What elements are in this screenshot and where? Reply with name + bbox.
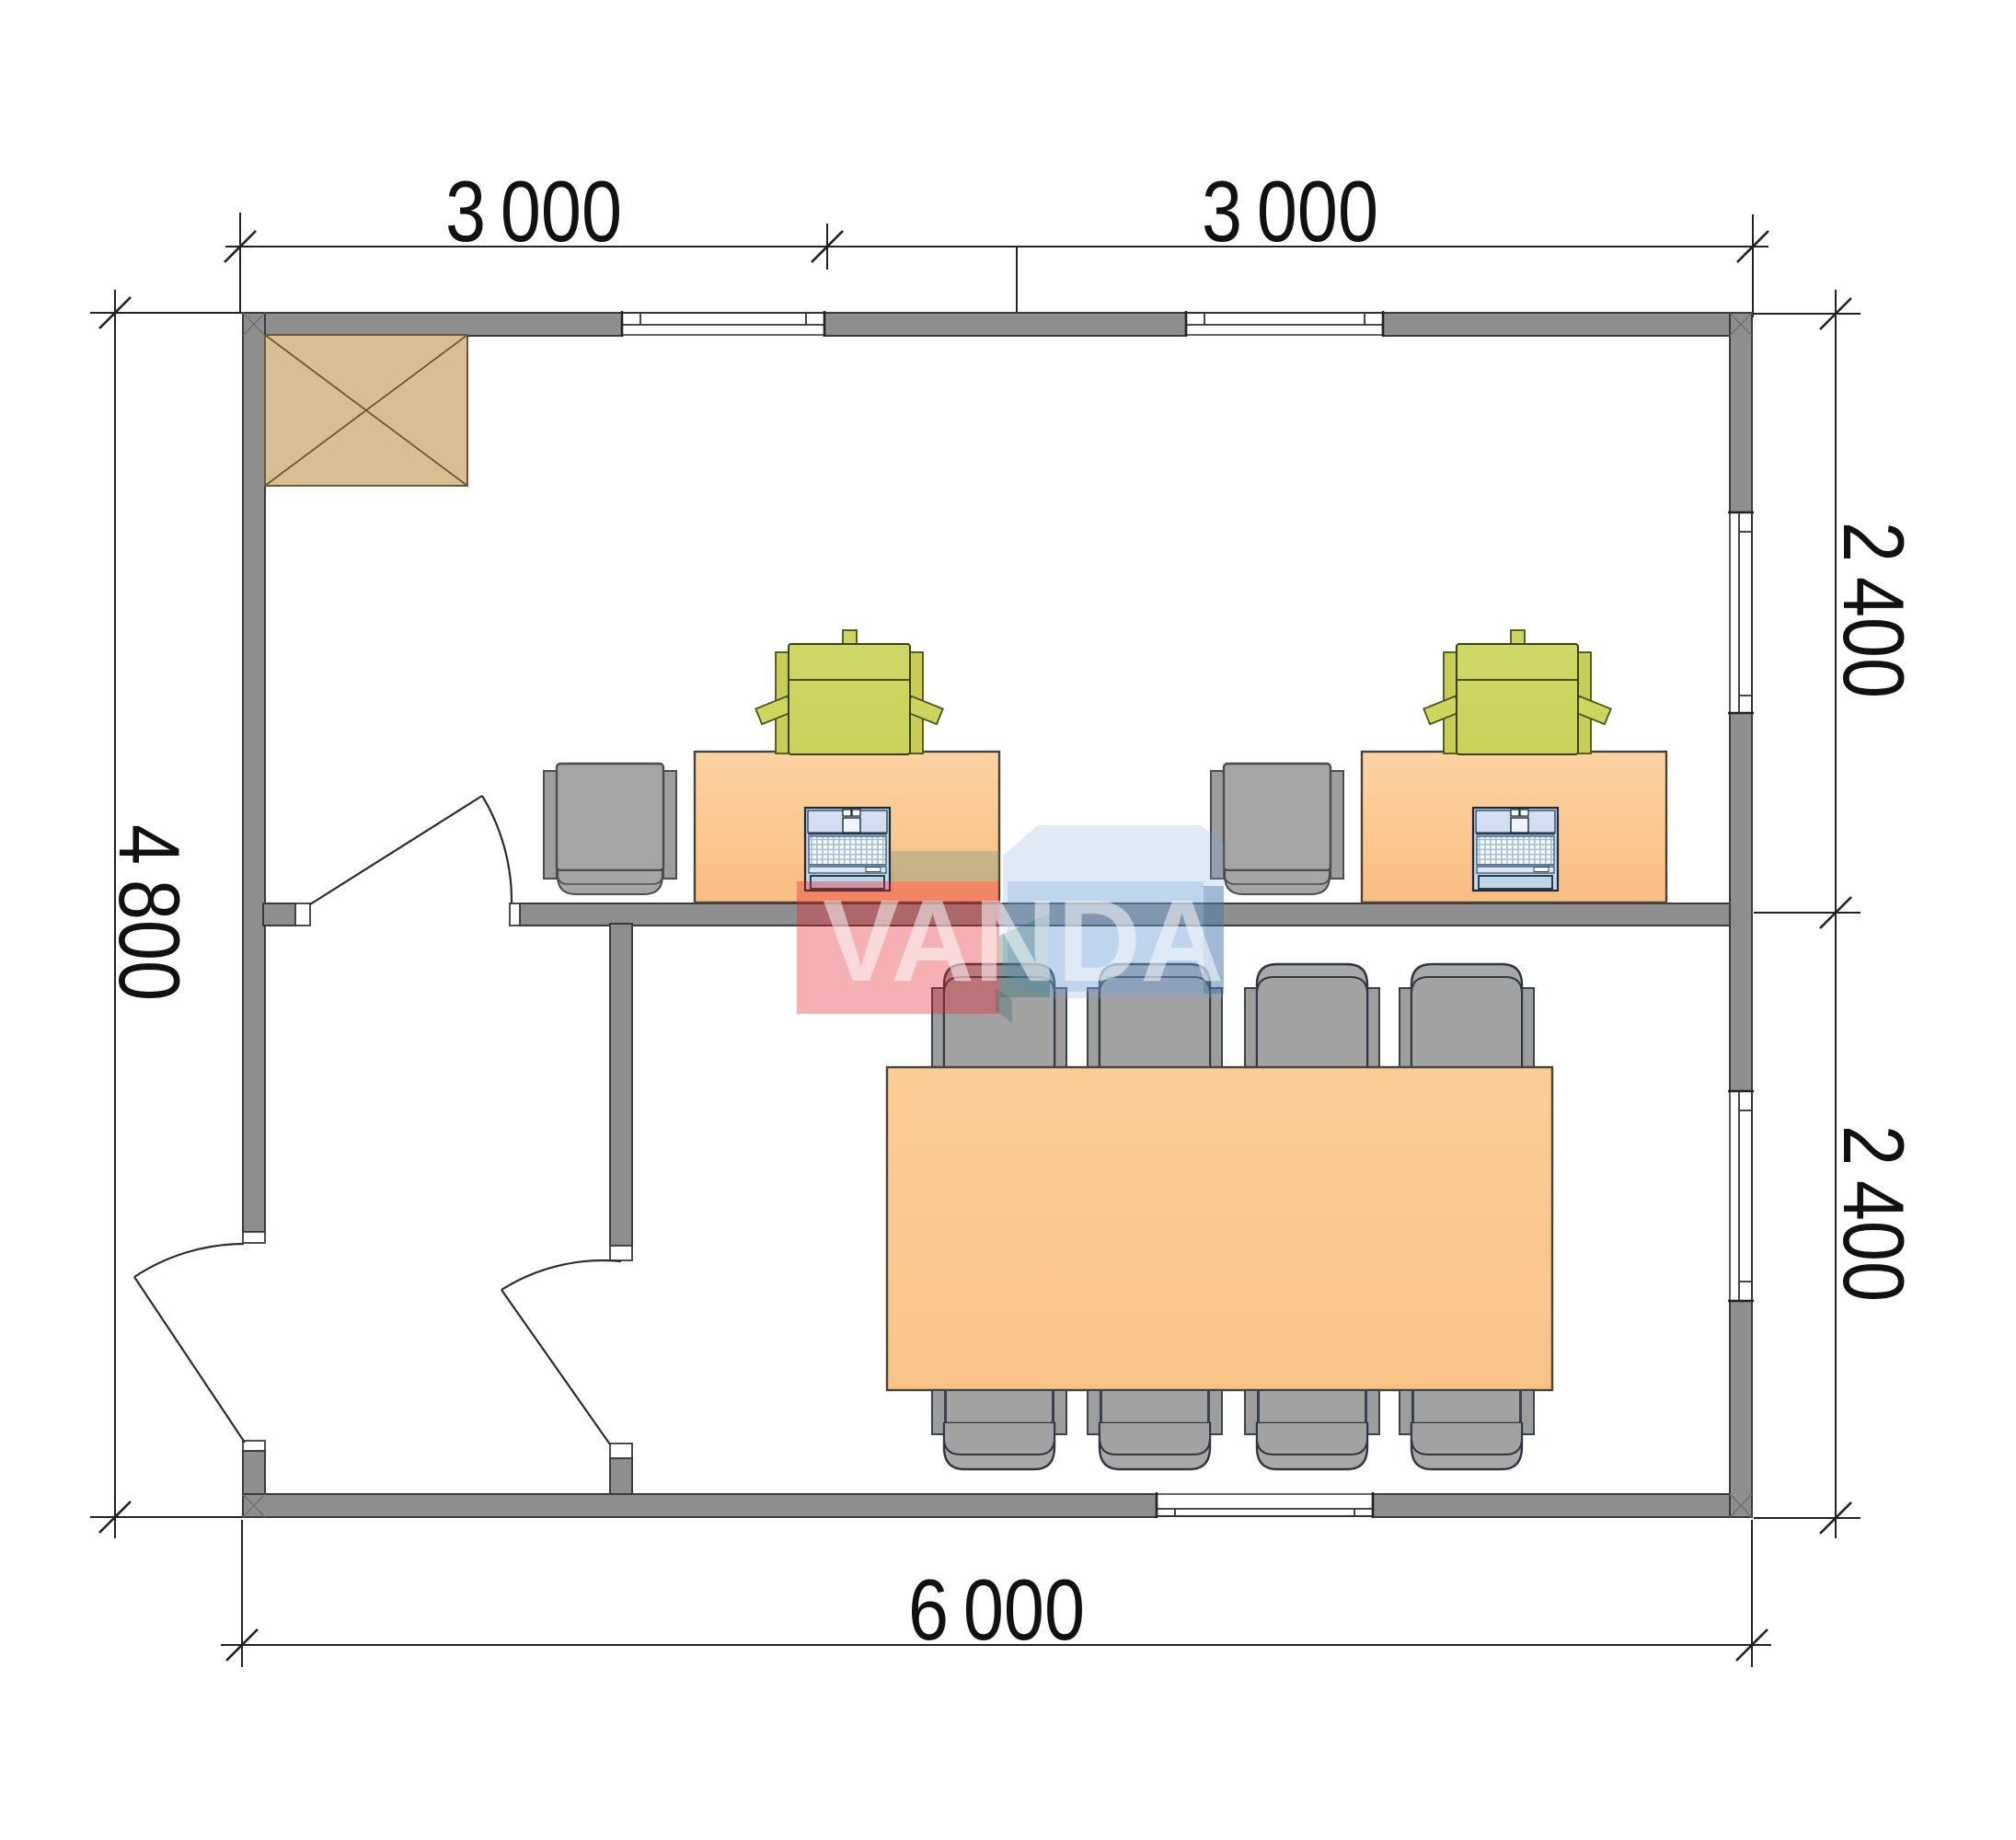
svg-text:3 000: 3 000 xyxy=(445,163,622,259)
svg-text:VANDA: VANDA xyxy=(823,876,1224,1006)
svg-text:6 000: 6 000 xyxy=(908,1561,1085,1658)
svg-text:4 800: 4 800 xyxy=(101,824,198,1001)
svg-text:2 400: 2 400 xyxy=(1826,1125,1922,1302)
svg-text:2 400: 2 400 xyxy=(1826,522,1922,698)
svg-text:3 000: 3 000 xyxy=(1202,163,1378,259)
